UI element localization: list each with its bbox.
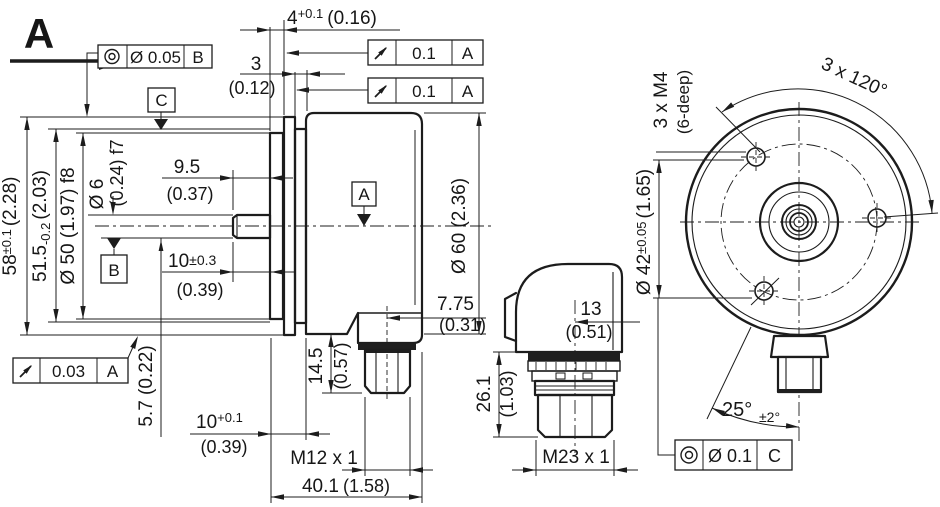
dim-conn-offset-inch: (0.31): [439, 315, 486, 335]
dim-mount-depth-inch: (0.39): [200, 437, 247, 457]
svg-text:A: A: [462, 82, 474, 101]
technical-drawing-page: A: [0, 0, 940, 507]
dim-holes: 3 x M4: [651, 71, 672, 128]
datum-triangle-icon: [154, 119, 168, 130]
dim-angle-tol: ±2°: [759, 409, 780, 425]
dim-offset-inch: (0.51): [565, 322, 612, 342]
connector-view: 13 (0.51) 26.1 (1.03) M23 x 1: [474, 264, 640, 476]
dim-height-inch: (1.03): [497, 370, 517, 417]
dim-mount-depth: 10+0.1: [196, 410, 243, 433]
rear-dimensions: 3 x M4 (6-deep) 3 x 120° Ø 42±0.05(1.65)…: [634, 53, 890, 425]
body-outline: [306, 113, 422, 343]
dim-shaft-len: 10±0.3: [168, 251, 217, 272]
rear-stub: [771, 336, 828, 393]
dim-housing: 58±0.1(2.28): [0, 177, 21, 276]
datum-triangle-icon: [107, 238, 121, 249]
svg-text:B: B: [192, 48, 203, 67]
svg-text:0.03: 0.03: [52, 362, 85, 381]
dim-shaft-usable: 9.5: [174, 157, 200, 178]
datum-c-label: C: [155, 91, 167, 110]
svg-text:A: A: [107, 362, 119, 381]
m12-connector-outline: [365, 350, 410, 393]
thread-rings: [535, 381, 614, 395]
svg-text:Ø 0.1: Ø 0.1: [708, 446, 752, 466]
dim-body-dia: Ø 60 (2.36): [449, 178, 470, 274]
fcf-runout-1: 0.1 A: [286, 40, 483, 65]
dim-flat: 5.7 (0.22): [136, 345, 157, 426]
fcf-position-holes: Ø 0.1 C: [675, 440, 792, 470]
dim-body-len: 40.1(1.58): [302, 476, 390, 497]
dim-conn-height: 14.5: [306, 348, 327, 385]
dim-height: 26.1: [474, 376, 495, 413]
datum-a: A: [352, 182, 376, 226]
svg-text:C: C: [768, 446, 781, 466]
fcf-runout-shaft: 0.03 A: [13, 335, 140, 383]
svg-text:Ø 0.05: Ø 0.05: [130, 48, 181, 67]
encoder-dimensional-drawing: A: [0, 0, 940, 507]
svg-text:0.1: 0.1: [412, 44, 436, 63]
dim-spacing: 3 x 120°: [818, 53, 890, 102]
datum-a-label: A: [358, 185, 370, 204]
dim-flange: 51.5-0.2(2.03): [30, 170, 53, 282]
dim-offset: 13: [580, 299, 601, 320]
dim-collar: Ø 50 (1.97) f8: [58, 167, 79, 284]
encoder-outline: [233, 113, 422, 393]
dome-tab: [505, 293, 516, 341]
connector-dimensions: 13 (0.51) 26.1 (1.03) M23 x 1: [474, 299, 613, 468]
dim-pilot-depth: 4+0.1(0.16): [287, 6, 377, 29]
dim-conn-height-inch: (0.57): [331, 342, 351, 389]
dim-angle: 25°: [722, 399, 752, 421]
fcf-runout-2: 0.1 A: [296, 78, 483, 103]
dim-bolt-circle: Ø 42±0.05(1.65): [634, 169, 655, 295]
dim-conn-thread: M12 x 1: [290, 448, 358, 469]
dim-shaft-usable-inch: (0.37): [166, 184, 213, 204]
datum-c: C: [148, 88, 175, 130]
rear-view: Ø 0.1 C 3 x M4 (6-deep) 3 x 120° Ø 42±0.…: [634, 53, 938, 470]
dim-gap-inch: (0.12): [228, 78, 275, 98]
dim-conn-offset: 7.75: [437, 294, 474, 315]
connector-outline: [505, 264, 622, 437]
svg-text:0.1: 0.1: [412, 82, 436, 101]
dim-holes-depth: (6-deep): [674, 70, 693, 134]
datum-b: B: [101, 238, 127, 283]
dim-gap: 3: [251, 54, 262, 75]
shaft-outline: [233, 215, 270, 238]
svg-text:A: A: [462, 44, 474, 63]
dim-shaft-len-inch: (0.39): [176, 280, 223, 300]
datum-b-label: B: [108, 261, 119, 280]
dim-thread: M23 x 1: [542, 447, 610, 468]
side-view: A: [0, 6, 492, 503]
datum-triangle-icon: [357, 214, 371, 226]
view-direction-label: A: [24, 10, 54, 57]
dim-shaft-dia-inch: (0.24) f7: [107, 139, 127, 206]
dim-shaft-dia: Ø 6: [87, 179, 108, 210]
